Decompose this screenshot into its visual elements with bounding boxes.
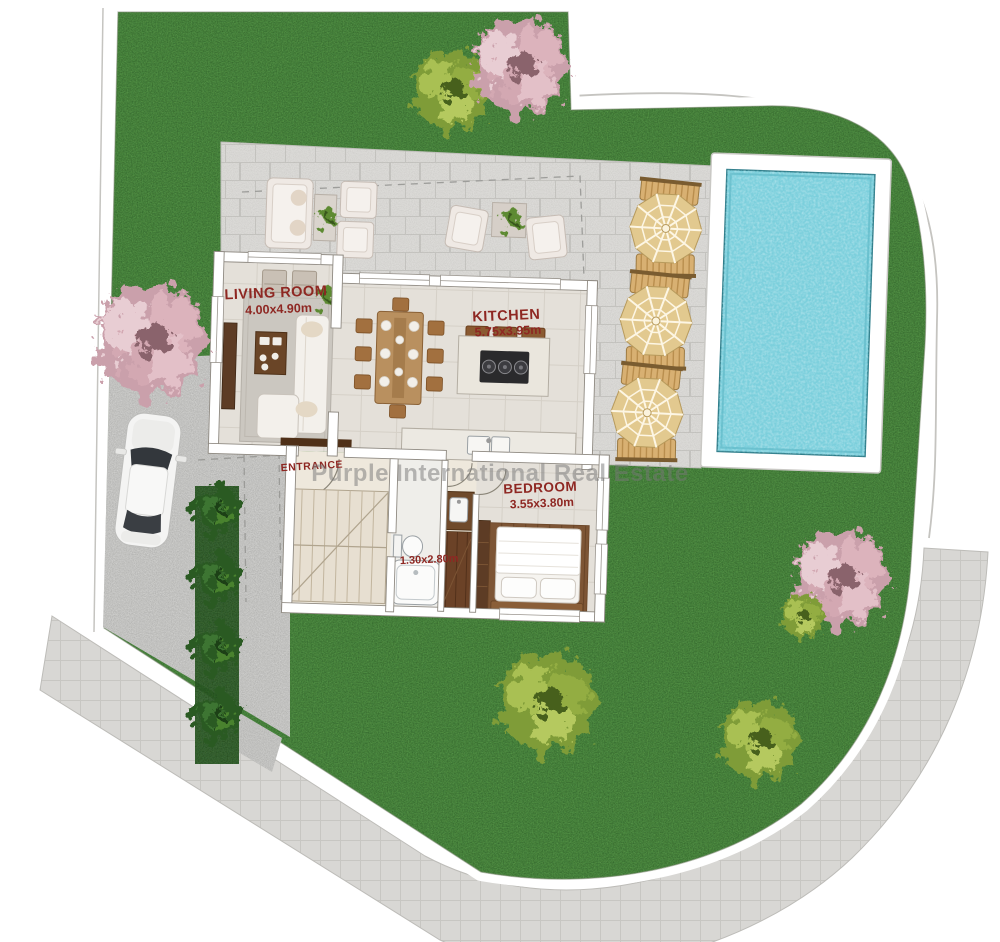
car-mirror (175, 455, 187, 462)
swimming-pool (701, 153, 892, 473)
hedge-strip (193, 486, 241, 764)
site-plan: LIVING ROOM 4.00x4.90m KITCHEN 5.75x3.95… (0, 0, 1000, 942)
hedge-bush (193, 554, 241, 602)
hedge-bush (193, 486, 241, 534)
watermark-text: Purple International Real Estate (311, 460, 688, 487)
car-roof (125, 464, 169, 517)
hedge-bush (193, 624, 241, 672)
bathroom-dims: 1.30x2.80m (400, 553, 459, 567)
car-mirror (115, 448, 127, 455)
chaise (257, 394, 299, 439)
blossom-tree (473, 18, 570, 115)
floor-plan-canvas: LIVING ROOM 4.00x4.90m KITCHEN 5.75x3.95… (0, 0, 1000, 942)
toilet-tank (393, 535, 402, 557)
duvet (496, 527, 581, 575)
kitchen-dims: 5.75x3.95m (474, 323, 541, 340)
coffee-table (255, 332, 287, 375)
blossom-tree (95, 283, 208, 396)
pillow (540, 578, 576, 599)
green-tree (720, 700, 800, 780)
green-tree (781, 594, 825, 638)
living-room-dims: 4.00x4.90m (245, 301, 312, 318)
green-tree (498, 652, 598, 752)
bedroom-dims: 3.55x3.80m (510, 495, 575, 512)
pillow (501, 577, 537, 598)
tv-console (222, 323, 238, 409)
hedge-bush (193, 692, 241, 740)
